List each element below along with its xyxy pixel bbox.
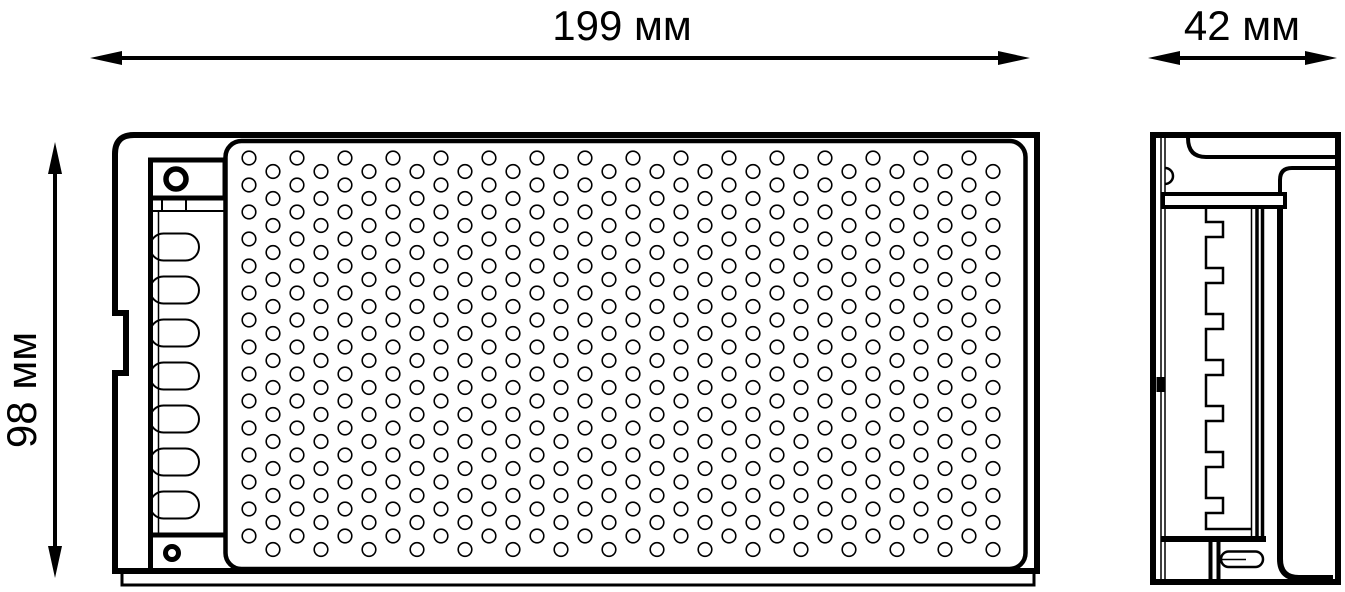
arrow-left-icon	[90, 51, 122, 65]
arrow-down-icon	[48, 546, 62, 578]
dimension-depth: 42 мм	[1148, 2, 1337, 65]
width-dimension-label: 199 мм	[552, 2, 692, 49]
front-view	[115, 135, 1037, 585]
arrow-left-icon	[1148, 51, 1180, 65]
side-rail-bar	[1163, 194, 1285, 207]
arrow-right-icon	[1305, 51, 1337, 65]
height-dimension-label: 98 мм	[0, 332, 45, 448]
dimension-height: 98 мм	[0, 142, 62, 578]
technical-drawing: 199 мм 42 мм 98 мм	[0, 0, 1345, 592]
side-view	[1153, 135, 1338, 582]
dimension-width: 199 мм	[90, 2, 1030, 65]
depth-dimension-label: 42 мм	[1184, 2, 1300, 49]
arrow-right-icon	[998, 51, 1030, 65]
arrow-up-icon	[48, 142, 62, 174]
